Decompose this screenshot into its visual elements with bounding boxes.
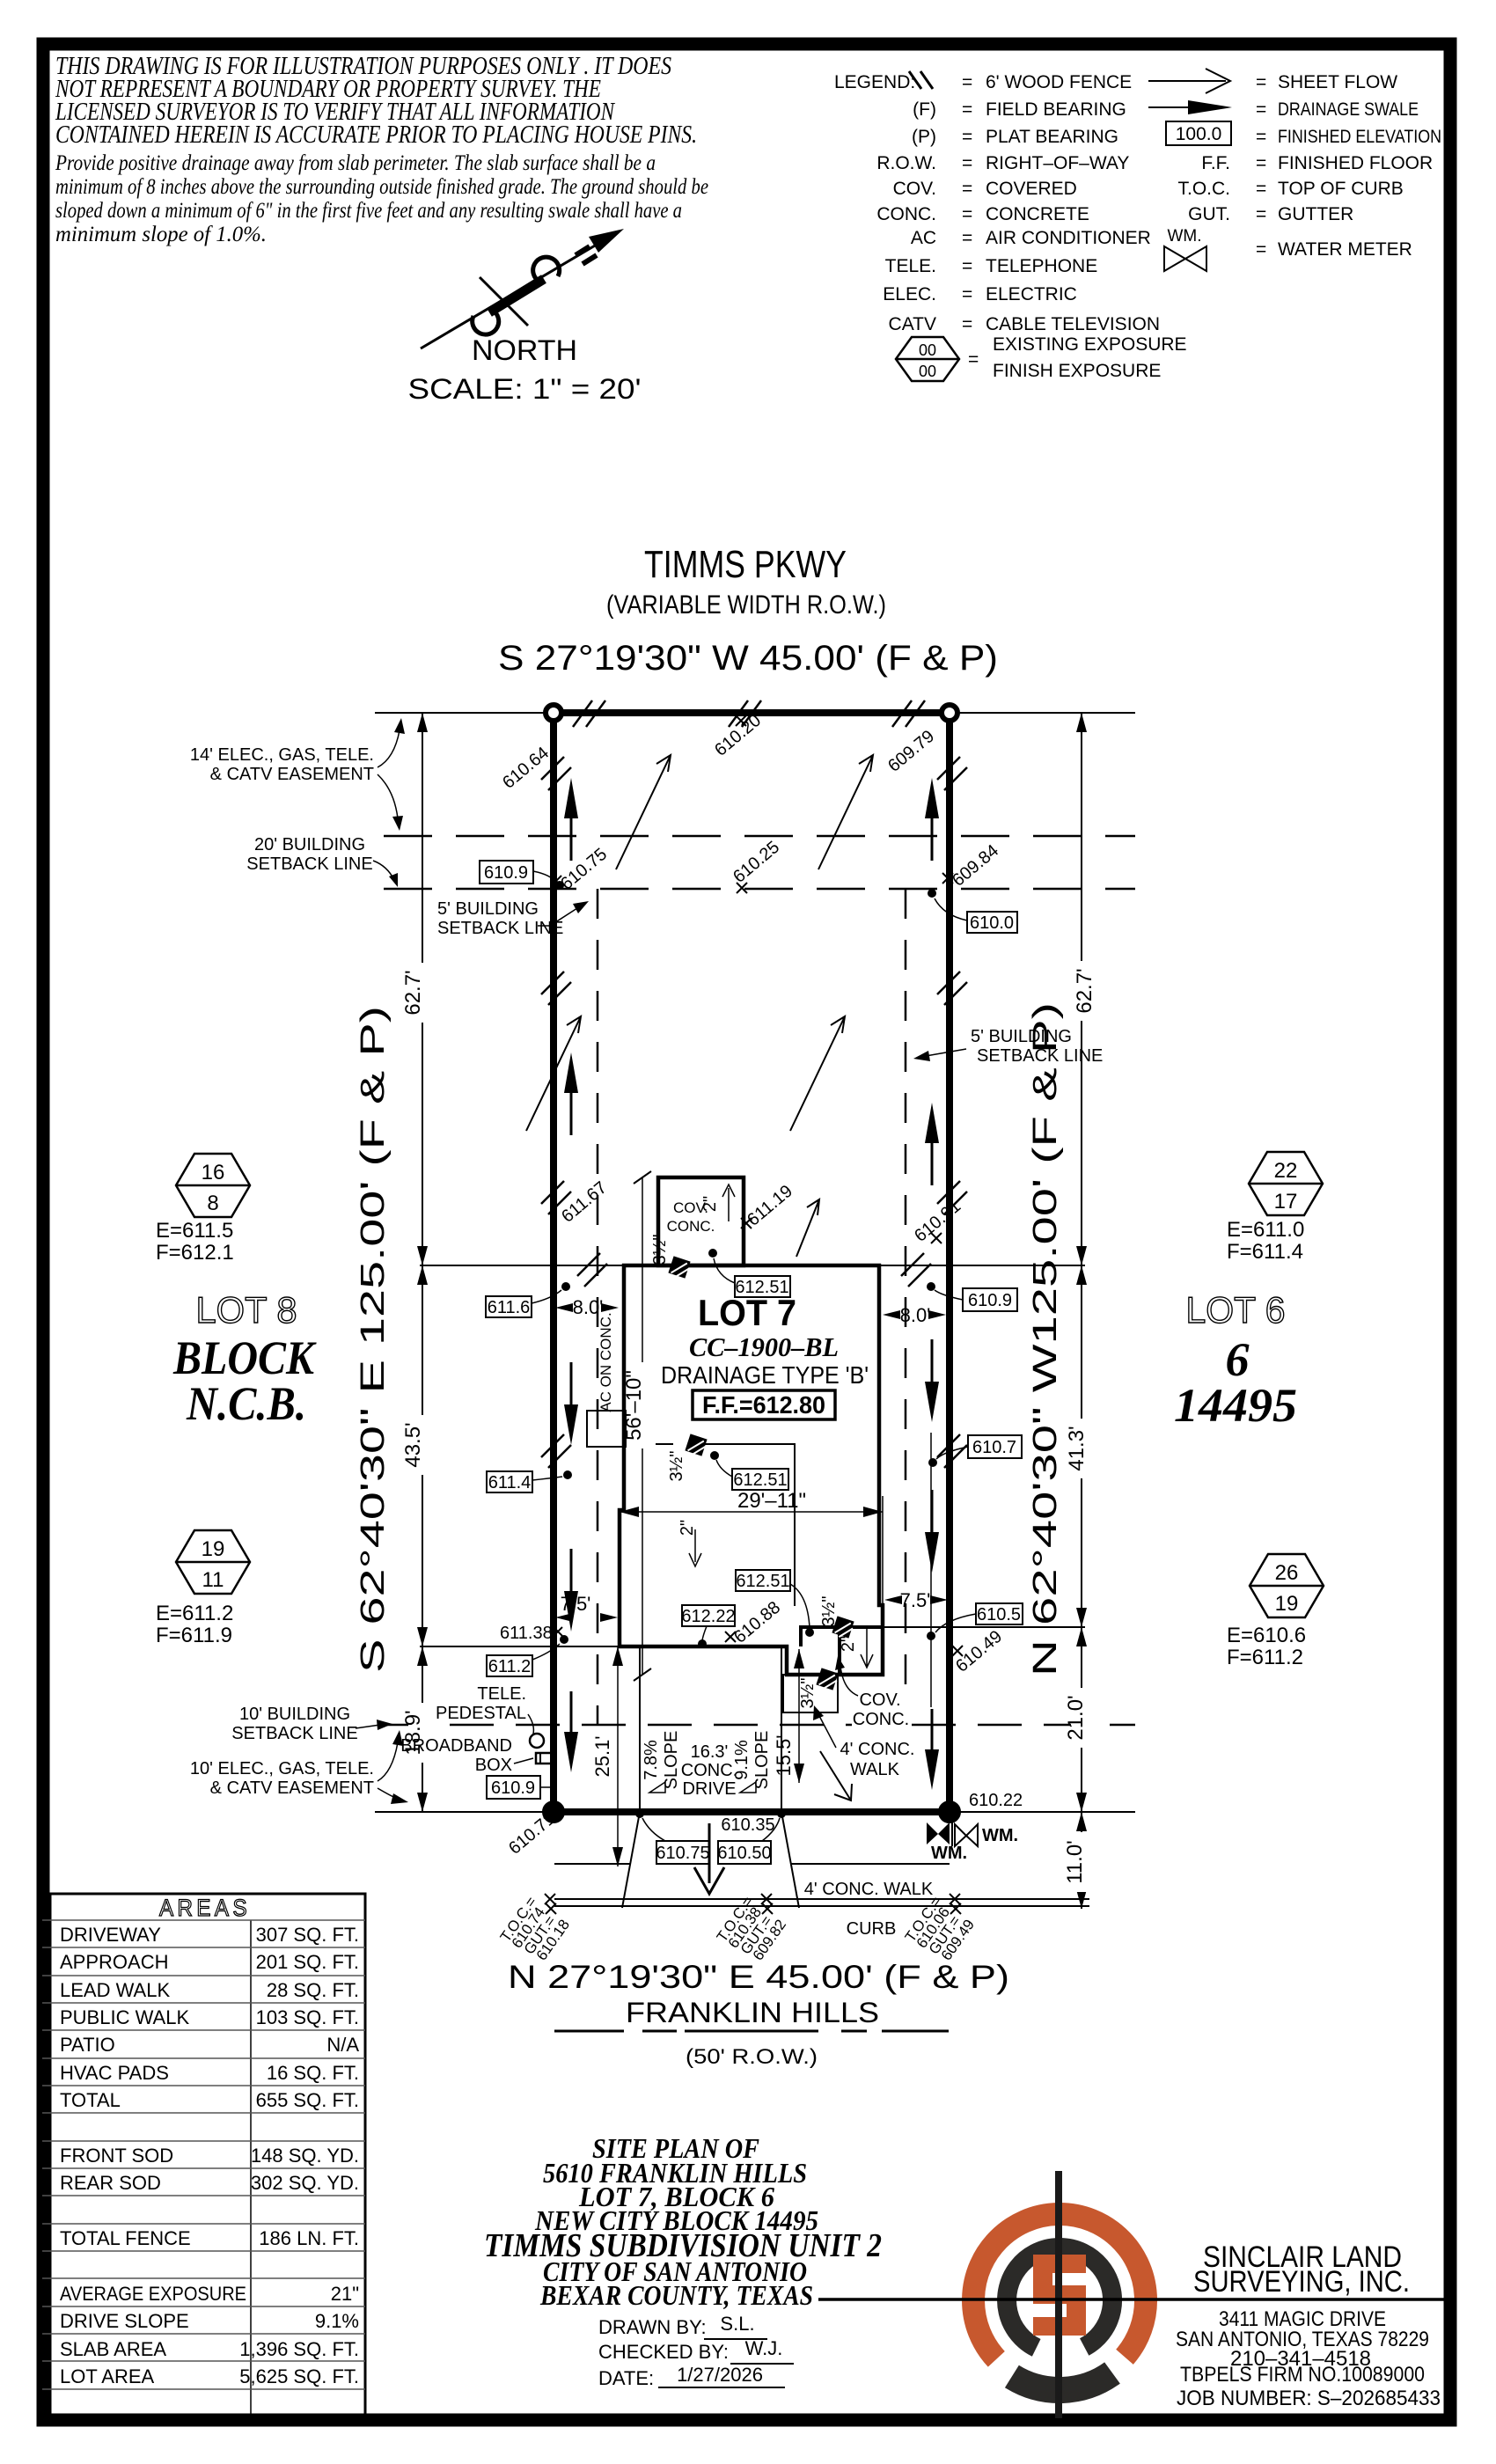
svg-text:29'–11": 29'–11" bbox=[737, 1489, 806, 1513]
svg-text:SETBACK LINE: SETBACK LINE bbox=[437, 919, 563, 938]
svg-text:00: 00 bbox=[919, 363, 936, 380]
svg-text:S.L.: S.L. bbox=[720, 2313, 754, 2335]
svg-text:=: = bbox=[1256, 153, 1266, 173]
svg-text:SETBACK LINE: SETBACK LINE bbox=[977, 1046, 1103, 1066]
svg-text:610.9: 610.9 bbox=[968, 1291, 1012, 1310]
svg-text:610.35: 610.35 bbox=[721, 1815, 774, 1835]
svg-text:610.0: 610.0 bbox=[970, 913, 1014, 933]
svg-text:=: = bbox=[962, 99, 972, 120]
svg-text:TELEPHONE: TELEPHONE bbox=[986, 256, 1097, 276]
svg-text:22: 22 bbox=[1274, 1159, 1298, 1183]
svg-text:302 SQ. YD.: 302 SQ. YD. bbox=[251, 2172, 359, 2194]
svg-text:=: = bbox=[1256, 127, 1266, 147]
svg-text:7.5': 7.5' bbox=[561, 1593, 591, 1615]
svg-text:=: = bbox=[962, 228, 972, 248]
svg-text:E=611.5: E=611.5 bbox=[156, 1219, 233, 1243]
svg-text:WM.: WM. bbox=[1167, 227, 1201, 246]
svg-text:T.O.C.: T.O.C. bbox=[1177, 179, 1230, 199]
svg-text:3½": 3½" bbox=[798, 1678, 818, 1709]
svg-text:PEDESTAL: PEDESTAL bbox=[436, 1704, 526, 1723]
svg-text:SHEET FLOW: SHEET FLOW bbox=[1278, 72, 1397, 92]
svg-text:TOTAL: TOTAL bbox=[60, 2089, 121, 2111]
svg-text:SLAB AREA: SLAB AREA bbox=[60, 2338, 166, 2360]
svg-text:SETBACK LINE: SETBACK LINE bbox=[231, 1724, 357, 1743]
svg-text:5' BUILDING: 5' BUILDING bbox=[971, 1027, 1072, 1046]
svg-text:3½": 3½" bbox=[819, 1596, 839, 1627]
svg-text:COV.: COV. bbox=[859, 1690, 900, 1710]
svg-text:5,625 SQ. FT.: 5,625 SQ. FT. bbox=[239, 2365, 359, 2387]
svg-text:AIR CONDITIONER: AIR CONDITIONER bbox=[986, 228, 1151, 248]
svg-text:Provide positive drainage away: Provide positive drainage away from slab… bbox=[55, 151, 656, 175]
svg-text:FINISHED ELEVATION: FINISHED ELEVATION bbox=[1278, 127, 1441, 147]
svg-text:(P): (P) bbox=[912, 127, 936, 147]
svg-text:611.38: 611.38 bbox=[500, 1624, 553, 1643]
svg-text:(VARIABLE WIDTH R.O.W.): (VARIABLE WIDTH R.O.W.) bbox=[606, 590, 886, 620]
svg-text:612.51: 612.51 bbox=[733, 1470, 787, 1490]
svg-text:PATIO: PATIO bbox=[60, 2034, 115, 2056]
svg-text:SETBACK LINE: SETBACK LINE bbox=[246, 854, 372, 874]
svg-text:CONC.: CONC. bbox=[853, 1710, 909, 1729]
svg-text:DRIVEWAY: DRIVEWAY bbox=[60, 1924, 161, 1946]
svg-text:10' BUILDING: 10' BUILDING bbox=[239, 1705, 350, 1724]
svg-text:CABLE TELEVISION: CABLE TELEVISION bbox=[986, 314, 1160, 334]
svg-text:610.50: 610.50 bbox=[717, 1844, 771, 1863]
svg-text:HVAC PADS: HVAC PADS bbox=[60, 2062, 169, 2084]
svg-text:19: 19 bbox=[202, 1537, 225, 1561]
svg-text:S 27°19'30" W 45.00' (F & P): S 27°19'30" W 45.00' (F & P) bbox=[498, 639, 998, 678]
svg-text:612.22: 612.22 bbox=[681, 1607, 735, 1626]
svg-text:610.9: 610.9 bbox=[484, 863, 528, 883]
svg-text:4' CONC.: 4' CONC. bbox=[840, 1740, 915, 1759]
svg-text:612.51: 612.51 bbox=[736, 1572, 789, 1591]
svg-text:=: = bbox=[962, 256, 972, 276]
svg-text:8.0': 8.0' bbox=[573, 1296, 604, 1318]
svg-text:NORTH: NORTH bbox=[472, 334, 577, 366]
svg-text:62.7': 62.7' bbox=[1073, 968, 1096, 1013]
svg-text:5' BUILDING: 5' BUILDING bbox=[437, 899, 539, 919]
svg-text:307 SQ. FT.: 307 SQ. FT. bbox=[256, 1924, 359, 1946]
svg-text:201 SQ. FT.: 201 SQ. FT. bbox=[256, 1951, 359, 1973]
svg-text:REAR SOD: REAR SOD bbox=[60, 2172, 161, 2194]
svg-text:11: 11 bbox=[202, 1568, 224, 1592]
svg-text:=: = bbox=[1256, 239, 1266, 260]
svg-text:F.F.=612.80: F.F.=612.80 bbox=[702, 1391, 825, 1419]
svg-text:AVERAGE EXPOSURE: AVERAGE EXPOSURE bbox=[60, 2283, 246, 2305]
svg-text:WALK: WALK bbox=[850, 1760, 900, 1779]
svg-text:APPROACH: APPROACH bbox=[60, 1951, 168, 1973]
svg-text:F=612.1: F=612.1 bbox=[156, 1241, 234, 1265]
svg-text:=: = bbox=[1256, 179, 1266, 199]
svg-text:CONC.: CONC. bbox=[876, 204, 936, 224]
svg-text:S 62°40'30" E 125.00' (F & P): S 62°40'30" E 125.00' (F & P) bbox=[355, 1006, 392, 1673]
svg-text:TIMMS PKWY: TIMMS PKWY bbox=[644, 543, 847, 586]
svg-text:N.C.B.: N.C.B. bbox=[186, 1377, 306, 1430]
svg-text:612.51: 612.51 bbox=[735, 1278, 788, 1297]
svg-text:14495: 14495 bbox=[1174, 1379, 1297, 1432]
svg-text:SLOPE: SLOPE bbox=[662, 1731, 681, 1790]
svg-text:=: = bbox=[962, 72, 972, 92]
svg-text:16.3': 16.3' bbox=[691, 1742, 729, 1762]
svg-text:16: 16 bbox=[202, 1161, 225, 1184]
svg-text:WM.: WM. bbox=[931, 1844, 967, 1863]
svg-text:610.9: 610.9 bbox=[491, 1778, 535, 1798]
svg-text:=: = bbox=[962, 153, 972, 173]
svg-text:3½": 3½" bbox=[667, 1451, 686, 1482]
svg-text:AREAS: AREAS bbox=[159, 1895, 251, 1921]
svg-text:JOB NUMBER: S–202685433: JOB NUMBER: S–202685433 bbox=[1177, 2387, 1441, 2410]
svg-text:PUBLIC WALK: PUBLIC WALK bbox=[60, 2006, 189, 2028]
svg-text:9.1%: 9.1% bbox=[315, 2310, 359, 2332]
svg-text:=: = bbox=[1256, 204, 1266, 224]
svg-text:GUT.: GUT. bbox=[1188, 204, 1230, 224]
svg-text:GUTTER: GUTTER bbox=[1278, 204, 1353, 224]
svg-text:DRIVE: DRIVE bbox=[682, 1779, 736, 1799]
svg-text:minimum of 8 inches above the: minimum of 8 inches above the surroundin… bbox=[55, 175, 708, 199]
svg-text:2": 2" bbox=[678, 1520, 697, 1536]
svg-text:TELE.: TELE. bbox=[885, 256, 936, 276]
svg-text:TELE.: TELE. bbox=[477, 1684, 526, 1704]
svg-text:11.0': 11.0' bbox=[1063, 1840, 1087, 1884]
svg-text:6' WOOD FENCE: 6' WOOD FENCE bbox=[986, 72, 1132, 92]
svg-text:CONCRETE: CONCRETE bbox=[986, 204, 1089, 224]
svg-text:CONC.: CONC. bbox=[667, 1218, 715, 1235]
svg-text:DRAWN BY:: DRAWN BY: bbox=[598, 2316, 707, 2338]
svg-text:FRANKLIN HILLS: FRANKLIN HILLS bbox=[626, 1997, 879, 2028]
svg-text:LOT AREA: LOT AREA bbox=[60, 2365, 155, 2387]
svg-text:62.7': 62.7' bbox=[401, 970, 425, 1015]
svg-text:610.22: 610.22 bbox=[969, 1791, 1023, 1810]
svg-text:20' BUILDING: 20' BUILDING bbox=[254, 835, 365, 854]
svg-text:ELECTRIC: ELECTRIC bbox=[986, 284, 1077, 304]
svg-text:=: = bbox=[962, 284, 972, 304]
svg-text:56'–10": 56'–10" bbox=[622, 1370, 646, 1441]
svg-text:(50' R.O.W.): (50' R.O.W.) bbox=[686, 2045, 818, 2069]
svg-text:8.0': 8.0' bbox=[900, 1304, 931, 1326]
svg-text:26: 26 bbox=[1275, 1561, 1299, 1585]
svg-text:EXISTING EXPOSURE: EXISTING EXPOSURE bbox=[993, 334, 1187, 355]
svg-text:00: 00 bbox=[919, 341, 936, 359]
svg-text:103 SQ. FT.: 103 SQ. FT. bbox=[256, 2006, 359, 2028]
svg-text:CONTAINED HEREIN IS ACCURATE P: CONTAINED HEREIN IS ACCURATE PRIOR TO PL… bbox=[55, 121, 697, 149]
svg-text:16 SQ. FT.: 16 SQ. FT. bbox=[267, 2062, 359, 2084]
svg-text:41.3': 41.3' bbox=[1065, 1426, 1089, 1470]
svg-text:WATER METER: WATER METER bbox=[1278, 239, 1412, 260]
svg-text:N 62°40'30" W125.00' (F & P): N 62°40'30" W125.00' (F & P) bbox=[1027, 1002, 1064, 1676]
svg-text:LOT 6: LOT 6 bbox=[1186, 1289, 1286, 1331]
svg-text:minimum slope of 1.0%.: minimum slope of 1.0%. bbox=[55, 223, 267, 246]
svg-text:LOT 7: LOT 7 bbox=[698, 1292, 796, 1333]
svg-text:148 SQ. YD.: 148 SQ. YD. bbox=[251, 2145, 359, 2167]
svg-text:COV.: COV. bbox=[893, 179, 936, 199]
svg-text:WM.: WM. bbox=[982, 1826, 1018, 1845]
svg-text:SURVEYING, INC.: SURVEYING, INC. bbox=[1193, 2265, 1410, 2299]
svg-text:DRAINAGE SWALE: DRAINAGE SWALE bbox=[1278, 99, 1419, 120]
svg-text:AC ON CONC.: AC ON CONC. bbox=[598, 1312, 614, 1412]
svg-text:N/A: N/A bbox=[326, 2034, 359, 2056]
svg-text:610.5: 610.5 bbox=[977, 1605, 1021, 1624]
svg-text:21": 21" bbox=[331, 2283, 359, 2305]
svg-text:655 SQ. FT.: 655 SQ. FT. bbox=[256, 2089, 359, 2111]
svg-text:& CATV EASEMENT: & CATV EASEMENT bbox=[210, 1778, 374, 1798]
svg-text:E=611.2: E=611.2 bbox=[156, 1602, 233, 1625]
svg-text:100.0: 100.0 bbox=[1176, 124, 1222, 144]
svg-text:611.6: 611.6 bbox=[488, 1298, 531, 1317]
svg-text:19: 19 bbox=[1275, 1592, 1299, 1616]
svg-text:2": 2" bbox=[700, 1196, 720, 1212]
svg-text:F=611.4: F=611.4 bbox=[1227, 1240, 1303, 1264]
svg-text:186 LN. FT.: 186 LN. FT. bbox=[259, 2227, 359, 2249]
svg-text:F=611.2: F=611.2 bbox=[1227, 1646, 1303, 1669]
svg-text:LOT 8: LOT 8 bbox=[196, 1289, 297, 1331]
svg-text:N 27°19'30" E 45.00' (F & P): N 27°19'30" E 45.00' (F & P) bbox=[508, 1959, 1009, 1995]
svg-text:TOP OF CURB: TOP OF CURB bbox=[1278, 179, 1404, 199]
svg-text:TBPELS FIRM NO.10089000: TBPELS FIRM NO.10089000 bbox=[1180, 2363, 1425, 2387]
svg-text:LEGEND:: LEGEND: bbox=[834, 72, 915, 92]
svg-text:FRONT SOD: FRONT SOD bbox=[60, 2145, 173, 2167]
svg-text:14' ELEC., GAS, TELE.: 14' ELEC., GAS, TELE. bbox=[190, 745, 374, 765]
svg-text:E=611.0: E=611.0 bbox=[1227, 1218, 1304, 1242]
svg-text:28 SQ. FT.: 28 SQ. FT. bbox=[267, 1979, 359, 2001]
svg-text:610.75: 610.75 bbox=[656, 1844, 709, 1863]
svg-text:21.0': 21.0' bbox=[1064, 1695, 1088, 1740]
svg-text:7.5': 7.5' bbox=[900, 1589, 931, 1611]
svg-text:CURB: CURB bbox=[847, 1919, 897, 1939]
svg-text:2": 2" bbox=[839, 1636, 858, 1652]
svg-text:FIELD BEARING: FIELD BEARING bbox=[986, 99, 1126, 120]
svg-text:1/27/2026: 1/27/2026 bbox=[677, 2364, 763, 2386]
svg-text:=: = bbox=[968, 349, 979, 370]
svg-text:9.1%: 9.1% bbox=[732, 1740, 752, 1780]
svg-text:=: = bbox=[962, 314, 972, 334]
svg-text:BROADBAND: BROADBAND bbox=[400, 1736, 512, 1756]
svg-text:TOTAL FENCE: TOTAL FENCE bbox=[60, 2227, 191, 2249]
svg-text:BLOCK: BLOCK bbox=[172, 1331, 317, 1384]
svg-text:=: = bbox=[1256, 99, 1266, 120]
svg-text:BEXAR COUNTY, TEXAS: BEXAR COUNTY, TEXAS bbox=[539, 2279, 813, 2311]
svg-text:611.4: 611.4 bbox=[488, 1473, 532, 1492]
svg-text:SCALE: 1" = 20': SCALE: 1" = 20' bbox=[408, 373, 642, 405]
svg-text:CONC.: CONC. bbox=[681, 1761, 737, 1780]
svg-text:6: 6 bbox=[1226, 1333, 1250, 1386]
svg-text:PLAT BEARING: PLAT BEARING bbox=[986, 127, 1118, 147]
svg-text:43.5': 43.5' bbox=[401, 1422, 425, 1467]
svg-text:4' CONC. WALK: 4' CONC. WALK bbox=[804, 1880, 934, 1899]
svg-text:17: 17 bbox=[1274, 1190, 1298, 1214]
svg-text:=: = bbox=[962, 204, 972, 224]
svg-text:LEAD WALK: LEAD WALK bbox=[60, 1979, 170, 2001]
svg-text:R.O.W.: R.O.W. bbox=[876, 153, 936, 173]
svg-text:7.8%: 7.8% bbox=[642, 1740, 661, 1780]
svg-text:DRAINAGE TYPE 'B': DRAINAGE TYPE 'B' bbox=[661, 1361, 869, 1389]
svg-text:COVERED: COVERED bbox=[986, 179, 1077, 199]
svg-text:DRIVE SLOPE: DRIVE SLOPE bbox=[60, 2310, 189, 2332]
svg-text:CHECKED BY:: CHECKED BY: bbox=[598, 2341, 729, 2363]
svg-text:10' ELEC., GAS, TELE.: 10' ELEC., GAS, TELE. bbox=[190, 1759, 374, 1778]
svg-text:=: = bbox=[1256, 72, 1266, 92]
svg-text:BOX: BOX bbox=[475, 1756, 512, 1775]
svg-text:ELEC.: ELEC. bbox=[883, 284, 936, 304]
svg-text:=: = bbox=[962, 179, 972, 199]
svg-text:FINISH EXPOSURE: FINISH EXPOSURE bbox=[993, 361, 1161, 381]
svg-text:F=611.9: F=611.9 bbox=[156, 1624, 232, 1647]
svg-text:3½": 3½" bbox=[650, 1235, 670, 1265]
svg-text:8: 8 bbox=[207, 1192, 218, 1215]
svg-text:FINISHED FLOOR: FINISHED FLOOR bbox=[1278, 153, 1433, 173]
svg-text:sloped down a minimum of 6" in: sloped down a minimum of 6" in the first… bbox=[55, 199, 682, 223]
svg-text:DATE:: DATE: bbox=[598, 2367, 654, 2389]
svg-text:E=610.6: E=610.6 bbox=[1227, 1624, 1306, 1647]
svg-text:611.2: 611.2 bbox=[488, 1657, 532, 1676]
svg-text:CATV: CATV bbox=[889, 314, 936, 334]
svg-text:(F): (F) bbox=[913, 99, 936, 120]
svg-text:25.1': 25.1' bbox=[591, 1735, 613, 1777]
svg-text:=: = bbox=[962, 127, 972, 147]
svg-text:RIGHT–OF–WAY: RIGHT–OF–WAY bbox=[986, 153, 1129, 173]
svg-text:AC: AC bbox=[911, 228, 936, 248]
svg-text:W.J.: W.J. bbox=[745, 2337, 783, 2359]
svg-text:& CATV EASEMENT: & CATV EASEMENT bbox=[210, 765, 374, 784]
svg-text:SLOPE: SLOPE bbox=[752, 1731, 772, 1790]
svg-text:1,396 SQ. FT.: 1,396 SQ. FT. bbox=[239, 2338, 359, 2360]
svg-text:F.F.: F.F. bbox=[1201, 153, 1230, 173]
svg-text:15.5': 15.5' bbox=[773, 1734, 795, 1776]
svg-text:610.7: 610.7 bbox=[972, 1438, 1016, 1457]
svg-text:CC–1900–BL: CC–1900–BL bbox=[689, 1331, 839, 1362]
